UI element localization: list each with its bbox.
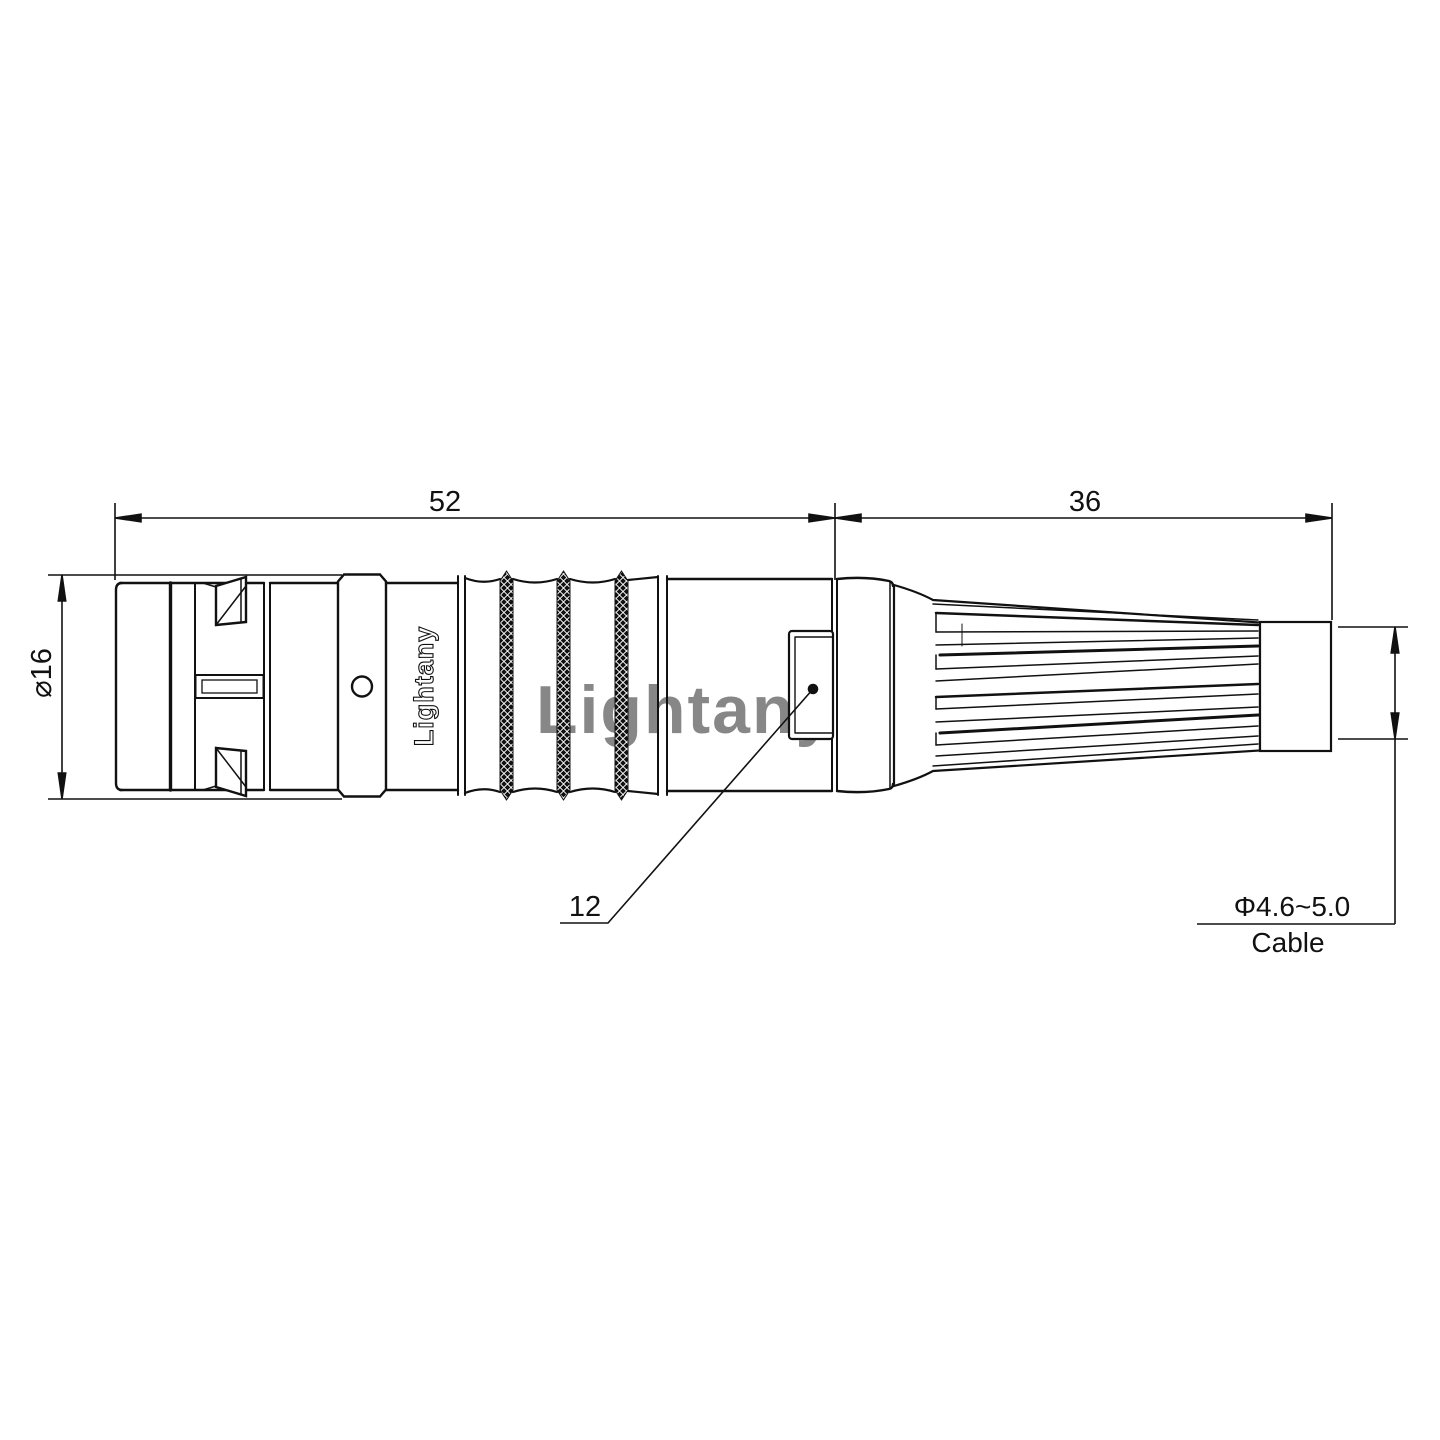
technical-drawing-canvas: Lightany [0, 0, 1440, 1440]
dim-diameter16-label: ⌀16 [26, 648, 58, 698]
leader-dot [809, 685, 818, 694]
knurl-band-1 [500, 571, 513, 800]
dim-12-label: 12 [569, 891, 601, 923]
side-hole [352, 677, 372, 697]
dim-52-label: 52 [429, 486, 461, 518]
dim-36-label: 36 [1069, 486, 1101, 518]
body-logo-text: Lightany [409, 626, 439, 747]
collar-ring [338, 575, 386, 797]
knurl-band-3 [615, 571, 628, 800]
cable-exit-block [1260, 622, 1331, 751]
connector-technical-drawing: Lightany [0, 0, 1440, 1440]
knurl-band-2 [557, 571, 570, 800]
cable-word-label: Cable [1251, 927, 1324, 958]
latch-center-bar [196, 675, 264, 698]
cable-diameter-label: Φ4.6~5.0 [1234, 891, 1351, 922]
